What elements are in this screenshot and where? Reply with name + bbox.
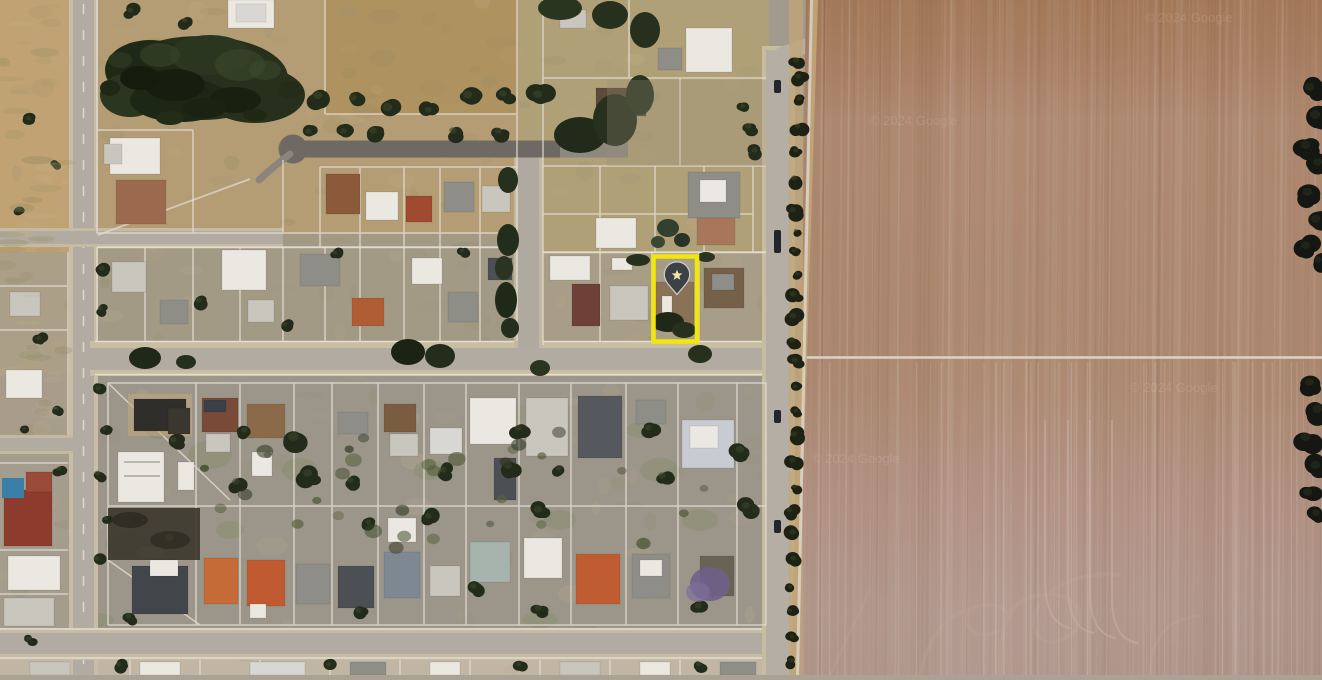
svg-text:© 2024 Google: © 2024 Google — [1130, 380, 1218, 395]
svg-text:© 2024 Google: © 2024 Google — [1145, 10, 1233, 25]
svg-text:© 2024 Google: © 2024 Google — [870, 113, 958, 128]
svg-text:© 2024 Google: © 2024 Google — [812, 451, 900, 466]
